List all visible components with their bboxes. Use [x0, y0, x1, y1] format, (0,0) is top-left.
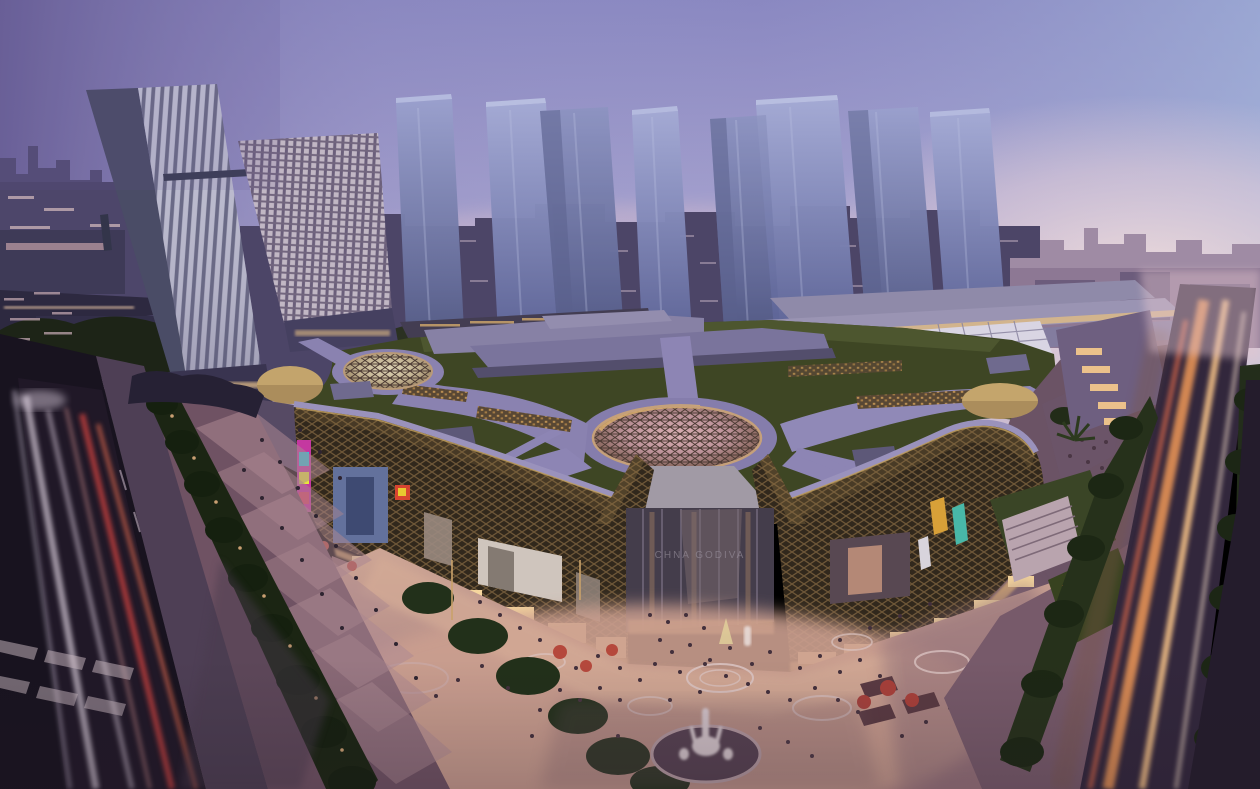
svg-text:CHNA GODIVA: CHNA GODIVA	[655, 550, 746, 561]
